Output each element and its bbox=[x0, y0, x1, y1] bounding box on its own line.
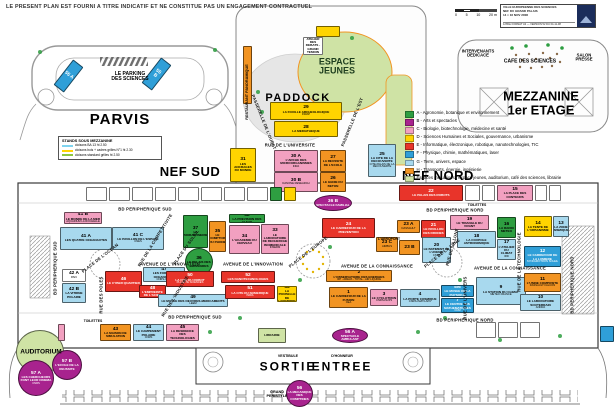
organizer-logo bbox=[577, 5, 595, 27]
title-block-line: 14 > 16 NOV 2008 bbox=[503, 14, 575, 18]
legend-category-m: Espaces mutualisés : espace jeunes, audi… bbox=[405, 176, 610, 183]
entree-label: ENTREE bbox=[312, 361, 373, 374]
legend-swatch bbox=[405, 176, 414, 183]
street-bd-peripherique-sud: BD PERIPHERIQUE SUD bbox=[168, 315, 222, 320]
street-rue-de-l-univers: RUE DE L'UNIVERS bbox=[463, 276, 468, 319]
scale-tick-label: 5 bbox=[466, 13, 468, 17]
restaurant-label: RESTAURANT PANORAMIQUE bbox=[245, 64, 249, 120]
legend-swatch bbox=[405, 151, 414, 158]
street-rue-de-l-industrie: RUE DE L'INDUSTRIE bbox=[160, 274, 189, 317]
legend-category-f: F - Physique, chimie, mathématiques, las… bbox=[405, 151, 610, 158]
legend-category-label: E - Informatique, électronique, robotiqu… bbox=[417, 143, 539, 148]
street-bd-peripherique-sud: BD PERIPHERIQUE SUD bbox=[118, 207, 172, 212]
nef-sud-label: NEF SUD bbox=[160, 165, 221, 179]
dhonneur-label: D'HONNEUR bbox=[331, 355, 353, 359]
street-bd-peripherique-sud: BD PERIPHERIQUE SUD bbox=[53, 241, 58, 295]
legend-category-label: H - Transports, énergie, ingénierie bbox=[417, 168, 482, 173]
disclaimer-text: LE PRESENT PLAN EST FOURNI A TITRE INDIC… bbox=[6, 4, 312, 10]
legend-category-label: G - Terre, univers, espace bbox=[417, 160, 466, 165]
street-rue-de-la-competitivite: RUE DE LA COMPETITIVITE bbox=[137, 213, 174, 268]
scale-bar: 051020 m bbox=[455, 9, 497, 17]
legend-category-b: B - Arts et spectacles bbox=[405, 119, 610, 126]
title-block-text: VILLE EUROPEENNE DES SCIENCESNEF DU GRAN… bbox=[501, 5, 577, 27]
parking-label: LE PARKING DES SCIENCES bbox=[111, 72, 148, 83]
toilettes-nord-label: TOILETTES bbox=[468, 204, 487, 208]
scale-tick-label: 0 bbox=[455, 13, 457, 17]
legend-category-label: Espaces mutualisés : espace jeunes, audi… bbox=[417, 176, 562, 181]
scale-tick-label: 20 m bbox=[489, 13, 497, 17]
salon-presse-label: SALON PRESSE bbox=[568, 54, 600, 63]
legend-sous-mezzanine-item: cloisons standard grilles ht 2.50 bbox=[62, 154, 158, 158]
legend-item-label: cloisons standard grilles ht 2.50 bbox=[75, 154, 120, 158]
legend-category-c: C - Biologie, biotechnologie, médecine e… bbox=[405, 127, 610, 134]
street-avenue-de-la-connaissance: AVENUE DE LA CONNAISSANCE bbox=[474, 266, 546, 271]
street-avenue-de-la-connaissance: AVENUE DE LA CONNAISSANCE bbox=[341, 264, 413, 269]
street-passerelle-de-l-est: PASSERELLE DE L'EST bbox=[340, 97, 364, 147]
parvis-label: PARVIS bbox=[90, 112, 150, 128]
street-rue-de-la-technologie: RUE DE LA TECHNOLOGIE bbox=[517, 232, 522, 292]
street-rue-des-poles: RUE DES POLES bbox=[99, 276, 104, 313]
cafe-des-sciences-label: CAFE DES SCIENCES bbox=[504, 59, 556, 64]
street-place-du-soleil: PLACE DU SOLEIL bbox=[172, 229, 200, 266]
legend-swatch bbox=[405, 127, 414, 134]
legend-sous-mezzanine-item: cloisons bois + cadres grilles N°1 ht 2.… bbox=[62, 149, 158, 153]
legend-category-e: E - Informatique, électronique, robotiqu… bbox=[405, 143, 610, 150]
street-place-de-l-europe: PLACE DE L'EUROPE bbox=[288, 235, 329, 268]
legend-sous-mezzanine: STANDS SOUS MEZZANINE cloisons BA 13 ht … bbox=[58, 136, 162, 160]
legend-item-label: cloisons bois + cadres grilles N°1 ht 2.… bbox=[75, 149, 133, 153]
legend-swatch bbox=[405, 160, 414, 167]
legend-category-label: D - Sciences Humaines et Sociales, gouve… bbox=[417, 135, 534, 140]
legend-swatch bbox=[405, 168, 414, 175]
legend-category-d: D - Sciences Humaines et Sociales, gouve… bbox=[405, 135, 610, 142]
legend-category-h: H - Transports, énergie, ingénierie bbox=[405, 168, 610, 175]
legend-swatch bbox=[405, 135, 414, 142]
legend-swatch bbox=[62, 154, 73, 156]
legend-categories: A - Agronomie, botanique et environnemen… bbox=[405, 111, 610, 184]
title-block-lines: VILLE EUROPEENNE DES SCIENCESNEF DU GRAN… bbox=[503, 6, 575, 17]
toilettes-sud-label: TOILETTES bbox=[84, 320, 103, 324]
street-avenue-de-l-innovation: AVENUE DE L'INNOVATION bbox=[223, 262, 283, 267]
auditorium-label: AUDITORIUM bbox=[20, 350, 61, 357]
legend-swatch bbox=[405, 111, 414, 118]
street-place-de-la-lune: PLACE DE LA LUNE bbox=[423, 237, 461, 268]
legend-swatch bbox=[62, 150, 73, 152]
espace-jeunes-label: ESPACE JEUNES bbox=[319, 58, 355, 77]
vestibule-label: VESTIBULE bbox=[278, 355, 298, 359]
title-block-footer: 1/350e FORMAT A3 — VERSION 52 DU 04-11-0… bbox=[503, 22, 575, 27]
scale-tick-label: 10 bbox=[476, 13, 480, 17]
legend-category-label: F - Physique, chimie, mathématiques, las… bbox=[417, 151, 499, 156]
sortie-label: SORTIE bbox=[260, 361, 317, 374]
legend-category-label: B - Arts et spectacles bbox=[417, 119, 457, 124]
legend-swatch bbox=[405, 143, 414, 150]
floor-plan: 29LA FOUILLE ARCHEOLOGIQUEINRAP28LA MEDI… bbox=[0, 0, 616, 415]
intervenants-label: INTERVENANTS DEDICACE bbox=[462, 50, 495, 59]
scale-labels: 051020 m bbox=[455, 13, 497, 17]
aeroport-label: L'AEROPORT bbox=[378, 238, 400, 242]
legend-swatch bbox=[405, 119, 414, 126]
paddock-label: PADDOCK bbox=[265, 93, 330, 105]
legend-swatch bbox=[62, 145, 73, 147]
legend-sous-mezzanine-items: cloisons BA 13 ht 2.50cloisons bois + ca… bbox=[62, 144, 158, 157]
grand-peristyle-label: GRAND PERISTYLE bbox=[266, 390, 287, 398]
street-avenue-de-l-innovation: AVENUE DE L'INNOVATION bbox=[140, 262, 200, 267]
street-place-de-l-ocean: PLACE DE L'OCEAN bbox=[81, 242, 120, 274]
street-bd-peripherique-nord: BD PERIPHERIQUE NORD bbox=[426, 208, 483, 213]
scale-bar-segments bbox=[455, 9, 497, 12]
legend-category-label: C - Biologie, biotechnologie, médecine e… bbox=[417, 127, 507, 132]
legend-category-a: A - Agronomie, botanique et environnemen… bbox=[405, 111, 610, 118]
legend-category-g: G - Terre, univers, espace bbox=[405, 160, 610, 167]
labels-layer: BD PERIPHERIQUE SUDBD PERIPHERIQUE SUDBD… bbox=[0, 0, 616, 415]
title-block: VILLE EUROPEENNE DES SCIENCESNEF DU GRAN… bbox=[500, 4, 596, 28]
street-bd-peripherique-nord: BD PERIPHERIQUE NORD bbox=[570, 256, 575, 313]
legend-category-label: A - Agronomie, botanique et environnemen… bbox=[417, 111, 500, 116]
